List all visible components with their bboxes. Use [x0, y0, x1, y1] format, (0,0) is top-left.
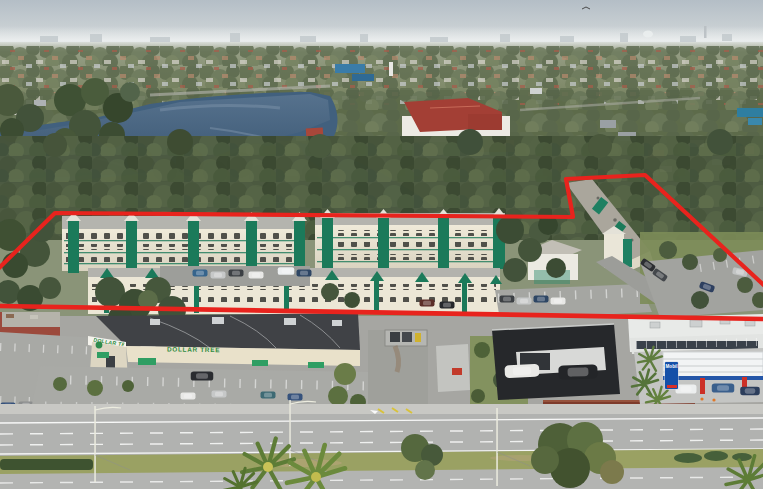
white-van [504, 364, 539, 378]
distant-city-skyline [40, 26, 732, 42]
black-suv [558, 364, 597, 379]
scene-art [0, 0, 763, 489]
highway [0, 400, 763, 489]
apartment-building-back-left [62, 212, 307, 273]
bird [582, 7, 590, 9]
courtyard-parking [160, 266, 312, 286]
median-hedge [0, 459, 93, 470]
dollar-tree-roof [96, 313, 360, 350]
aerial-photo: DOLLAR TREE DOLLAR TREE Mobil [0, 0, 763, 489]
mobil-gas-station [628, 314, 763, 411]
